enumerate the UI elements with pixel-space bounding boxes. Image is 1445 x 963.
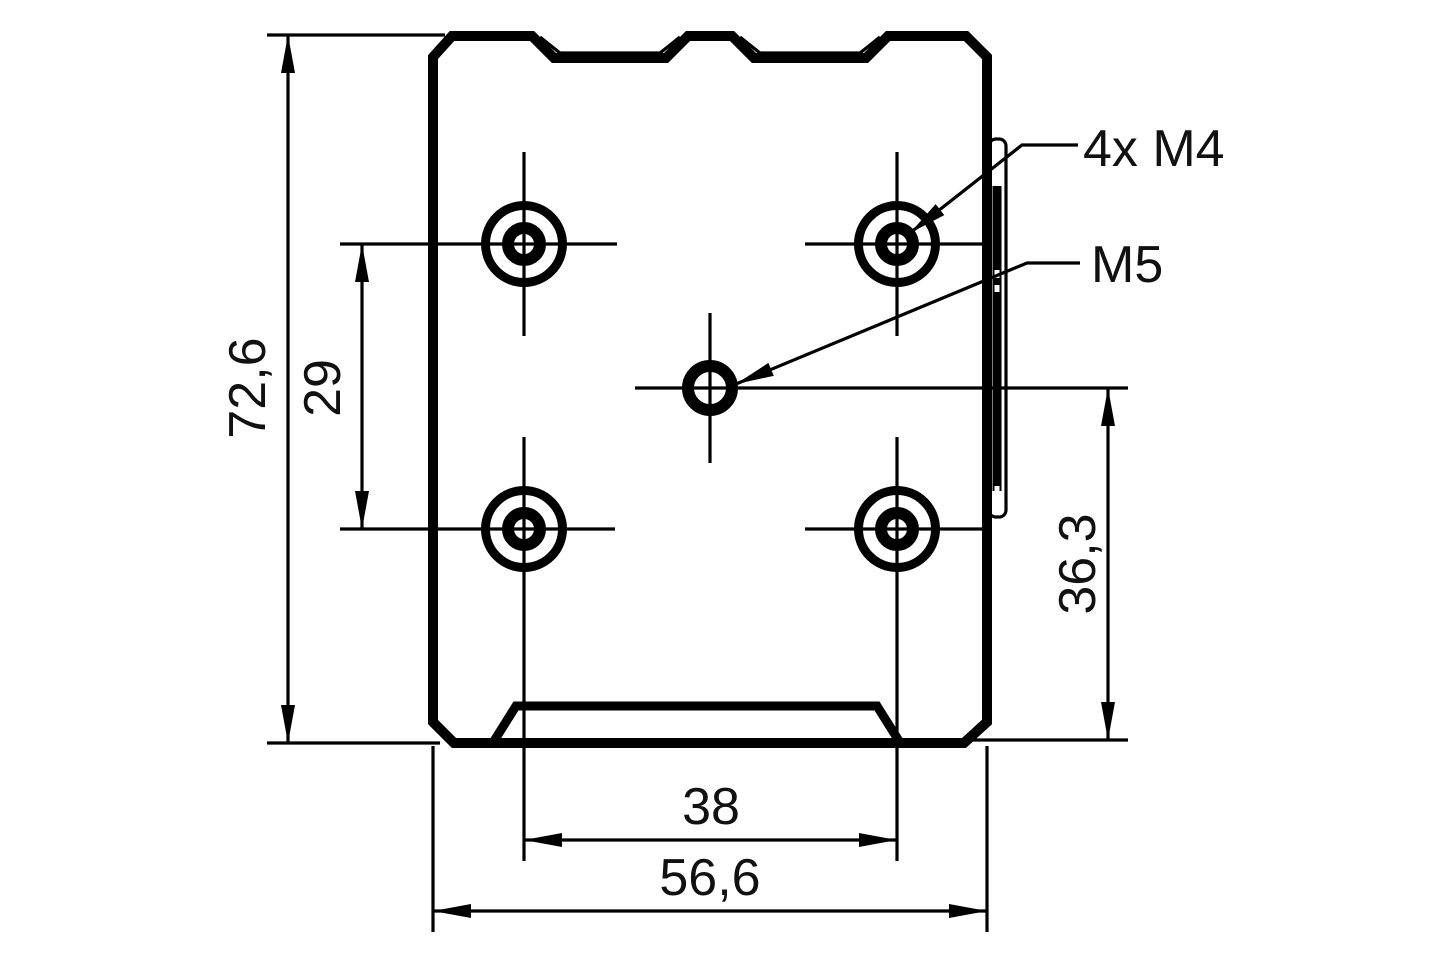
callout-center-hole: M5 xyxy=(733,236,1163,390)
mounting-plate-drawing: 72,6 29 38 56,6 36,3 4x M4 xyxy=(0,0,1445,963)
callout-corner-holes: 4x M4 xyxy=(906,120,1225,239)
dimension-label-overall-height: 72,6 xyxy=(219,337,277,438)
callout-label-center-hole: M5 xyxy=(1091,236,1163,294)
hole-bottom-right xyxy=(805,437,990,861)
arrowhead xyxy=(524,833,562,847)
arrowhead xyxy=(281,705,295,743)
dimension-label-hole-row-spacing: 29 xyxy=(294,359,352,417)
arrowhead xyxy=(1101,388,1115,426)
arrowhead xyxy=(859,833,897,847)
hole-center-m5 xyxy=(635,313,1128,463)
arrowhead xyxy=(355,244,369,282)
top-notch-left-inner-edge xyxy=(540,37,680,53)
dimension-label-center-to-bottom: 36,3 xyxy=(1049,513,1107,614)
arrowhead xyxy=(281,35,295,73)
bottom-dovetail-step xyxy=(494,706,899,741)
technical-drawing-canvas: 72,6 29 38 56,6 36,3 4x M4 xyxy=(0,0,1445,963)
arrowhead xyxy=(949,904,987,918)
arrowhead xyxy=(433,904,471,918)
dimension-hole-row-spacing: 29 xyxy=(294,244,369,529)
dimension-label-hole-column-spacing: 38 xyxy=(682,778,740,836)
top-notch-right-inner-edge xyxy=(740,37,880,53)
arrowhead xyxy=(733,363,773,391)
callout-label-corner-holes: 4x M4 xyxy=(1083,120,1225,178)
hole-top-right xyxy=(805,152,990,336)
hole-top-left xyxy=(340,152,617,336)
arrowhead xyxy=(355,491,369,529)
hole-bottom-left xyxy=(340,437,615,861)
arrowhead xyxy=(1101,702,1115,740)
dimension-label-overall-width: 56,6 xyxy=(659,849,760,907)
dimension-hole-column-spacing: 38 xyxy=(524,778,897,847)
